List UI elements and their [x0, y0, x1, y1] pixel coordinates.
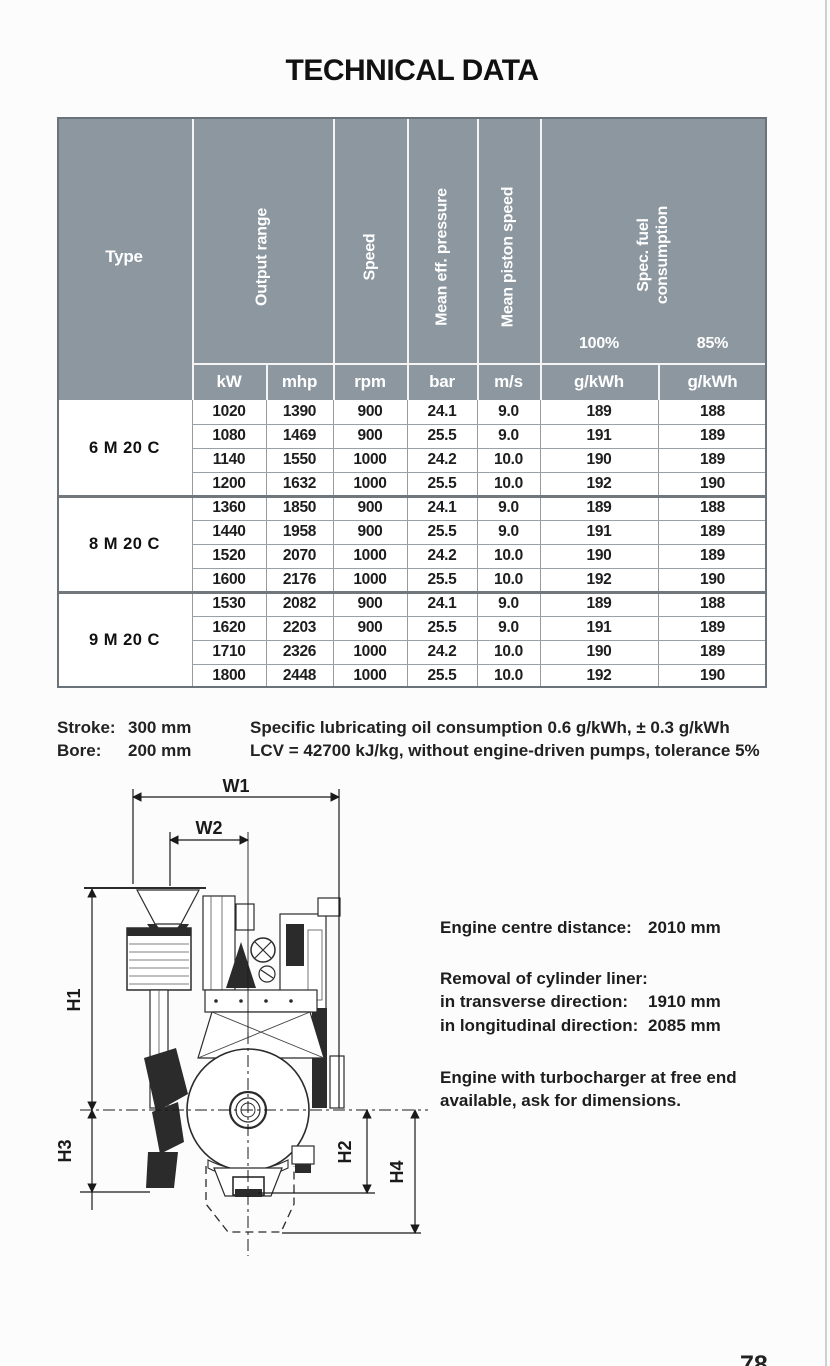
engine-dimension-drawing: W1 W2 H1 H3 H2 H4: [40, 758, 440, 1268]
turbo-note-line1: Engine with turbocharger at free end: [440, 1068, 737, 1088]
label-w1: W1: [223, 776, 250, 796]
longitudinal-label: in longitudinal direction:: [440, 1016, 638, 1035]
mid-plate: [205, 990, 317, 1012]
transverse-value: 1910 mm: [648, 992, 721, 1012]
longitudinal-value: 2085 mm: [648, 1016, 721, 1036]
longitudinal-line: in longitudinal direction: 2085 mm: [440, 1016, 638, 1036]
technical-data-table: Type Output range Speed Mean eff. pressu…: [57, 117, 767, 688]
stroke-label: Stroke:: [57, 718, 116, 738]
engine-body: [84, 888, 344, 1232]
label-h1: H1: [64, 988, 84, 1011]
charge-air-cooler: [127, 928, 191, 990]
lube-oil-note: Specific lubricating oil consumption 0.6…: [250, 718, 730, 738]
left-foot: [146, 1152, 178, 1188]
label-h3: H3: [55, 1139, 75, 1162]
transverse-line: in transverse direction: 1910 mm: [440, 992, 628, 1012]
right-foot: [292, 1146, 314, 1164]
page-title: TECHNICAL DATA: [0, 54, 824, 88]
scanned-page: TECHNICAL DATA Type Output range Speed M…: [0, 0, 830, 1366]
stroke-value: 300 mm: [128, 718, 191, 738]
label-h2: H2: [335, 1140, 355, 1163]
table-outer-border: [57, 117, 767, 688]
centre-distance-line: Engine centre distance: 2010 mm: [440, 918, 632, 938]
page-number: 78: [740, 1351, 768, 1366]
transverse-label: in transverse direction:: [440, 992, 628, 1011]
removal-title: Removal of cylinder liner:: [440, 969, 648, 989]
centre-distance-value: 2010 mm: [648, 918, 721, 938]
turbo-note-line2: available, ask for dimensions.: [440, 1091, 681, 1111]
centre-distance-label: Engine centre distance:: [440, 918, 632, 937]
intake-funnel: [137, 890, 199, 924]
scan-edge-line: [825, 0, 827, 1366]
label-w2: W2: [196, 818, 223, 838]
label-h4: H4: [387, 1160, 407, 1183]
